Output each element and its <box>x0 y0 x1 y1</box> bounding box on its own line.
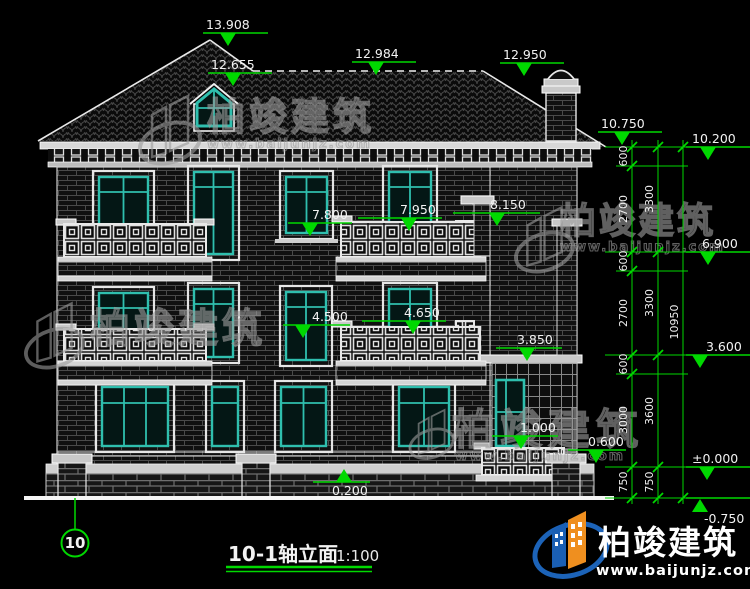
drawing-title: 10-1轴立面 <box>228 542 338 566</box>
svg-text:13.908: 13.908 <box>206 17 250 32</box>
dim-600: 600 <box>617 251 630 272</box>
balcony-2f-center <box>332 321 486 385</box>
logo-building-blue <box>552 522 566 568</box>
svg-text:0.600: 0.600 <box>588 434 624 449</box>
cornice-lower-band <box>48 162 592 167</box>
watermark-brand: 柏竣建筑 <box>90 306 266 352</box>
balcony-railing <box>341 327 480 361</box>
balcony-3f-left <box>56 219 214 281</box>
drawing-scale: 1:100 <box>336 547 379 565</box>
dim-3300: 3300 <box>643 289 656 317</box>
svg-text:3.850: 3.850 <box>517 332 553 347</box>
svg-text:12.655: 12.655 <box>211 57 255 72</box>
svg-text:12.950: 12.950 <box>503 47 547 62</box>
elevation-drawing-canvas: 柏竣建筑 www.baijunjz.com 柏竣建筑 www.baijunjz.… <box>0 0 750 589</box>
dim-2700: 2700 <box>617 195 630 223</box>
chimney <box>542 71 580 142</box>
base-pilaster-left <box>52 454 92 497</box>
svg-text:4.650: 4.650 <box>404 305 440 320</box>
dim-600: 600 <box>617 146 630 167</box>
dim-3300: 3300 <box>643 185 656 213</box>
dim-600: 600 <box>617 354 630 375</box>
svg-text:10.200: 10.200 <box>692 131 736 146</box>
svg-text:4.500: 4.500 <box>312 309 348 324</box>
svg-text:1.000: 1.000 <box>520 420 556 435</box>
dim-3600: 3600 <box>643 397 656 425</box>
svg-text:±0.000: ±0.000 <box>692 451 738 466</box>
balcony-railing <box>64 224 206 257</box>
dim-750: 750 <box>617 472 630 493</box>
drawing-title-block: 10-1轴立面 1:100 <box>226 542 379 572</box>
window-1f-2 <box>206 381 244 452</box>
brand-url: www.baijunjz.com <box>596 563 750 579</box>
svg-text:6.900: 6.900 <box>702 236 738 251</box>
svg-text:7.950: 7.950 <box>400 202 436 217</box>
dim-2700: 2700 <box>617 299 630 327</box>
svg-text:0.200: 0.200 <box>332 483 368 498</box>
watermark-brand: 柏竣建筑 <box>207 95 375 139</box>
window-sill <box>275 239 338 243</box>
axis-number: 10 <box>65 534 86 552</box>
watermark-brand: 柏竣建筑 <box>560 201 716 242</box>
svg-text:10.750: 10.750 <box>601 116 645 131</box>
svg-text:7.800: 7.800 <box>312 207 348 222</box>
dim-750: 750 <box>643 472 656 493</box>
base-pilaster-mid <box>236 454 276 497</box>
logo-building-orange <box>568 511 586 569</box>
watermark-url: www.baijunjz.com <box>207 137 372 152</box>
brand-name: 柏竣建筑 <box>598 523 738 562</box>
window-1f-4 <box>393 381 455 452</box>
svg-text:8.150: 8.150 <box>490 197 526 212</box>
svg-text:3.600: 3.600 <box>706 339 742 354</box>
svg-text:12.984: 12.984 <box>355 46 399 61</box>
dim-total-10950: 10950 <box>668 305 681 340</box>
dim-3000: 3000 <box>617 406 630 434</box>
window-1f-3 <box>275 381 332 452</box>
window-1f-1 <box>96 381 174 452</box>
